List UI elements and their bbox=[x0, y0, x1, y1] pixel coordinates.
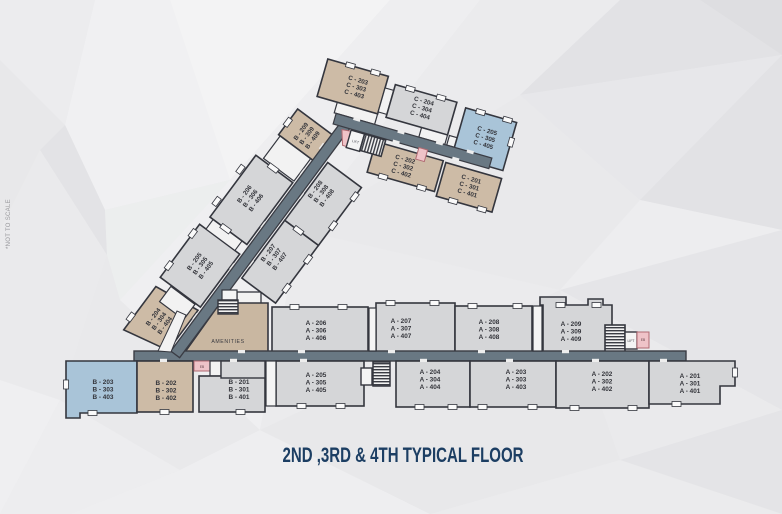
svg-text:A - 207A - 307A - 407: A - 207A - 307A - 407 bbox=[391, 318, 412, 340]
svg-text:A - 205A - 305A - 405: A - 205A - 305A - 405 bbox=[306, 372, 327, 394]
svg-text:B - 201B - 301B - 401: B - 201B - 301B - 401 bbox=[229, 379, 250, 401]
svg-text:A - 201A - 301A - 401: A - 201A - 301A - 401 bbox=[680, 373, 701, 395]
svg-text:A - 209A - 309A - 409: A - 209A - 309A - 409 bbox=[561, 321, 582, 343]
svg-text:AMENITIES: AMENITIES bbox=[211, 339, 244, 345]
svg-text:B - 202B - 302B - 402: B - 202B - 302B - 402 bbox=[156, 380, 177, 402]
svg-text:A - 208A - 308A - 408: A - 208A - 308A - 408 bbox=[479, 319, 500, 341]
svg-text:EB: EB bbox=[200, 365, 204, 369]
svg-text:EB: EB bbox=[641, 338, 645, 342]
svg-text:A - 202A - 302A - 402: A - 202A - 302A - 402 bbox=[592, 371, 613, 393]
svg-text:A - 203A - 303A - 403: A - 203A - 303A - 403 bbox=[506, 369, 527, 391]
svg-text:A - 206A - 306A - 406: A - 206A - 306A - 406 bbox=[306, 320, 327, 342]
svg-text:*NOT TO SCALE: *NOT TO SCALE bbox=[6, 199, 12, 249]
svg-text:B - 203B - 303B - 403: B - 203B - 303B - 403 bbox=[93, 379, 114, 401]
svg-text:A - 204A - 304A - 404: A - 204A - 304A - 404 bbox=[420, 369, 441, 391]
svg-text:2ND ,3RD & 4TH TYPICAL FLOOR: 2ND ,3RD & 4TH TYPICAL FLOOR bbox=[283, 444, 524, 467]
svg-text:LIFT: LIFT bbox=[628, 339, 635, 343]
